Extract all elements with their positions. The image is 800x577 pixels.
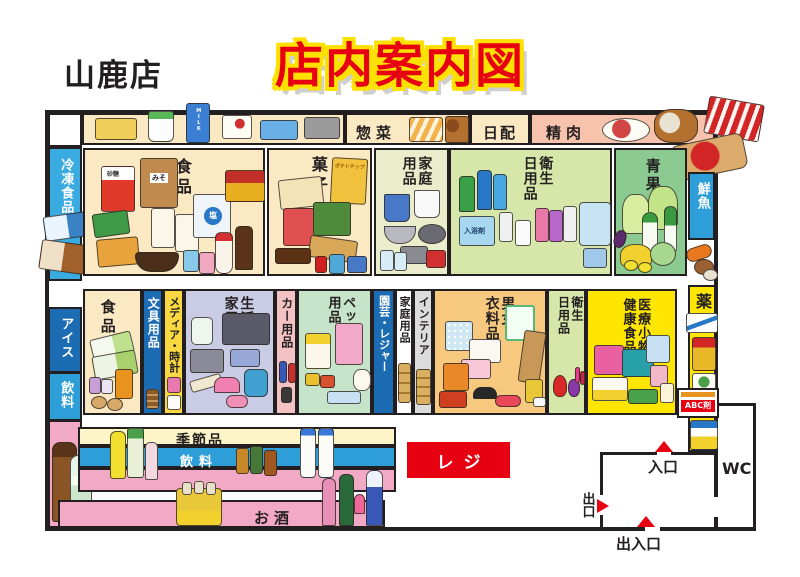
section-label: 冷凍食品: [58, 158, 73, 214]
media-pack-icon: [167, 377, 181, 393]
canned-fruit-icon: [199, 252, 215, 274]
spray-can-icon: [279, 361, 287, 383]
section-food-1: 食品 砂糖 みそ 塩: [83, 148, 265, 276]
drink-can-icon: [236, 448, 249, 474]
detergent-bottle-icon: [477, 170, 492, 210]
section-label: 衛生 日用品: [556, 296, 583, 335]
candy-tube-icon: [315, 256, 327, 273]
sugar-box-icon: 砂糖: [101, 166, 135, 212]
detergent-jug-icon: [579, 202, 611, 246]
beer-can-icon: [194, 481, 204, 494]
wine-glass-icon: [354, 494, 365, 514]
drink-can-icon: [250, 446, 263, 474]
bath-salts-label: 入浴剤: [464, 226, 485, 236]
wall-segment: [600, 452, 603, 495]
gloves-icon: [533, 397, 546, 407]
meat-cuts-icon: [654, 109, 698, 143]
section-ice-cream: アイス: [48, 307, 82, 373]
shampoo-bottle-icon: [563, 206, 577, 242]
milk-carton-icon: MILK: [186, 103, 210, 143]
green-tea-box-icon: [127, 428, 144, 478]
soy-sauce-bottle-icon: [235, 226, 253, 270]
ramen-bowl-icon: [135, 252, 179, 272]
page-title: 店内案内図: [275, 26, 525, 96]
canned-fruit-icon: [183, 250, 199, 272]
sign-stripe: [681, 392, 715, 397]
potato-snack-can-icon: [329, 254, 345, 274]
medicine-box-icon: [690, 420, 718, 450]
section-label: 衛生 日用品: [521, 156, 552, 201]
medicine-pack-icon: [686, 313, 718, 333]
drawer-chest-icon: [398, 363, 411, 403]
tv-icon: [222, 313, 270, 345]
vacuum-icon: [244, 369, 268, 397]
section-label: 家庭 用品: [400, 156, 431, 186]
detergent-bottle-icon: [459, 176, 475, 212]
salt-label: 塩: [204, 207, 222, 225]
meat-plate-icon: [602, 118, 650, 142]
sake-bottle-icon: [366, 470, 383, 526]
drink-can-icon: [264, 450, 277, 476]
perfume-bottle-icon: [553, 375, 567, 397]
section-hygiene-daily-1: 衛生 日用品 入浴剤: [449, 148, 612, 276]
jam-jar-icon: [89, 377, 101, 394]
tempura-plate-icon: [409, 117, 443, 142]
wall-segment: [600, 452, 657, 455]
section-media-clocks: メディア・時計: [163, 289, 184, 415]
section-clothing: 男女 衣料品: [433, 289, 547, 415]
section-beverage-left: 飲料: [48, 372, 82, 421]
detergent-bottle-icon: [493, 174, 507, 210]
section-label: インテリア: [417, 296, 429, 356]
hair-dryer-icon: [226, 395, 248, 408]
purse-icon: [439, 391, 467, 408]
section-label: 飲料: [58, 381, 73, 409]
wine-bottle-icon: [322, 478, 336, 526]
supplement-box-icon: [592, 377, 628, 401]
pet-food-bag-icon: [305, 333, 331, 369]
radio-cassette-icon: [230, 349, 260, 367]
section-label: メディア・時計: [167, 296, 179, 373]
section-home-appliances: 生活 家電: [184, 289, 275, 415]
jam-jar-icon: [101, 379, 113, 394]
frying-pan-icon: [418, 224, 446, 244]
section-household-1: 家庭 用品: [374, 148, 449, 276]
section-hygiene-daily-2: 衛生 日用品: [547, 289, 586, 415]
entrance-exit-arrow-icon: [637, 516, 655, 527]
dog-icon: [353, 369, 371, 391]
contact-lens-box-icon: [646, 335, 670, 363]
section-label: アイス: [58, 317, 73, 359]
microwave-icon: [190, 349, 224, 373]
section-household-2: 家庭用品: [395, 289, 413, 415]
bread-roll-icon: [107, 398, 123, 411]
iron-icon: [214, 377, 240, 393]
entrance-arrow-icon: [655, 441, 673, 452]
beer-can-icon: [182, 482, 192, 495]
potato-chips-icon: ポテトチップ: [330, 157, 368, 205]
section-meat: 精肉: [530, 113, 715, 145]
medicine-box-icon: [692, 337, 716, 371]
section-car-goods: カー用品: [275, 289, 297, 415]
shirt-hanger-icon: [414, 190, 440, 218]
section-medicine: 薬: [688, 285, 716, 452]
spray-bottle-icon: [499, 212, 513, 242]
wall-segment: [753, 403, 756, 531]
tofu-tray-icon: [260, 120, 298, 140]
section-label: 文具用品: [146, 297, 159, 349]
bread-roll-icon: [91, 396, 107, 409]
register-label: レジ: [427, 448, 491, 473]
chips-label: ポテトチップ: [335, 162, 365, 171]
storage-box-icon: [426, 250, 446, 268]
wall-segment: [718, 403, 756, 406]
section-label: 薬: [693, 293, 711, 310]
cat-tower-icon: [335, 323, 363, 365]
store-name: 山鹿店: [64, 50, 163, 95]
tea-jar-icon: [115, 369, 133, 399]
section-label: カー用品: [279, 297, 292, 349]
section-label: 惣菜: [356, 122, 396, 143]
soda-bottle-icon: [145, 442, 158, 480]
drink-carton-icon: [660, 383, 674, 403]
electric-pot-icon: [191, 317, 213, 345]
bowl-icon: [384, 226, 416, 244]
section-stationery: 文具用品: [142, 289, 163, 415]
wall-segment: [660, 527, 756, 531]
section-deli: 惣菜: [345, 113, 470, 145]
section-label: 園芸・レジャー: [377, 295, 389, 372]
section-label: 鮮魚: [694, 182, 709, 210]
water-bottle-icon: [300, 428, 316, 478]
butter-box-icon: [95, 118, 137, 140]
clock-face-icon: [167, 395, 181, 410]
section-label: 日配: [483, 122, 517, 143]
natto-pack-icon: [222, 115, 252, 139]
entrance-label: 入口: [648, 456, 678, 477]
section-produce: 青果: [614, 148, 687, 276]
miso-bag-icon: みそ: [140, 158, 178, 208]
section-fresh-fish: 鮮魚: [688, 172, 715, 240]
section-interior: インテリア: [413, 289, 433, 415]
noodle-pack-icon: [92, 210, 131, 239]
miso-label: みそ: [150, 173, 168, 183]
section-food-2: 食品: [83, 289, 142, 415]
pitcher-icon: [380, 250, 394, 271]
wall-segment: [671, 452, 718, 455]
lemon-icon: [638, 262, 652, 273]
section-label: 医療小物 健康食品: [620, 298, 649, 354]
exit-label: 出口: [579, 492, 594, 518]
noodle-pack-icon: [96, 236, 140, 268]
melon-icon: [650, 242, 676, 266]
lemon-icon: [624, 260, 638, 271]
section-medical-health: 医療小物 健康食品: [586, 289, 677, 415]
section-pet-goods: ペット 用品: [297, 289, 372, 415]
store-floor-map: 山鹿店 店内案内図 冷凍食品 アイス 飲料 MILK 惣菜 日配: [0, 0, 800, 577]
toilet-label: WC: [722, 459, 751, 478]
pet-can-icon: [305, 373, 320, 386]
lipstick-icon: [580, 371, 585, 385]
shampoo-bottle-icon: [549, 210, 563, 242]
pitcher-icon: [394, 252, 407, 271]
abc-sign-label: ABC剤: [681, 400, 715, 412]
section-daily-products: 日配: [470, 113, 530, 145]
lemon-drink-bottle-icon: [110, 431, 126, 479]
bandage-box-icon: [628, 389, 658, 404]
mayonnaise-icon: [215, 232, 233, 274]
milk-carton-label: MILK: [195, 108, 201, 132]
wax-can-icon: [281, 387, 292, 403]
rice-cracker-icon: [313, 202, 351, 236]
flour-carton-icon: [151, 208, 175, 248]
wine-bottle-icon: [339, 474, 354, 526]
slippers-icon: [495, 395, 521, 407]
curry-box-icon: [225, 170, 265, 202]
frozen-pack-icon: [38, 239, 88, 275]
shoes-icon: [473, 387, 497, 399]
tote-bag-icon: [443, 363, 469, 391]
corner-service-box: [48, 113, 82, 147]
section-label: 家庭用品: [398, 296, 410, 344]
gum-box-icon: [347, 256, 367, 273]
abc-ad-sign: ABC剤: [677, 388, 719, 418]
sugar-label: 砂糖: [107, 169, 119, 178]
section-label: 精肉: [546, 122, 586, 143]
yogurt-cup-icon: [148, 111, 174, 142]
spray-can-icon: [288, 363, 296, 383]
entrance-exit-label: 出入口: [616, 533, 661, 554]
exit-arrow-icon: [597, 499, 609, 513]
soap-pump-icon: [515, 220, 531, 246]
section-label: お酒: [254, 507, 294, 528]
mochi-pack-icon: [304, 117, 340, 139]
health-food-box-icon: [594, 345, 624, 375]
section-label: 食品: [99, 299, 116, 337]
drawer-chest-icon: [416, 369, 431, 405]
bath-salts-box-icon: 入浴剤: [459, 216, 495, 246]
shirt-hanger-icon: [384, 194, 410, 222]
chocolate-bar-icon: [275, 248, 311, 264]
shampoo-bottle-icon: [535, 208, 549, 242]
detergent-refill-icon: [583, 248, 607, 268]
potato-icon: [703, 269, 718, 281]
fried-chicken-icon: [445, 116, 469, 143]
calculator-icon: [146, 389, 159, 409]
pet-can-icon: [320, 375, 335, 388]
section-garden-leisure: 園芸・レジャー: [372, 289, 395, 415]
section-confectionery: 菓子 ポテトチップ: [267, 148, 372, 276]
pet-mat-icon: [327, 391, 361, 404]
water-bottle-icon: [318, 428, 334, 478]
register-sign: レジ: [407, 442, 510, 478]
beer-can-icon: [206, 482, 216, 495]
